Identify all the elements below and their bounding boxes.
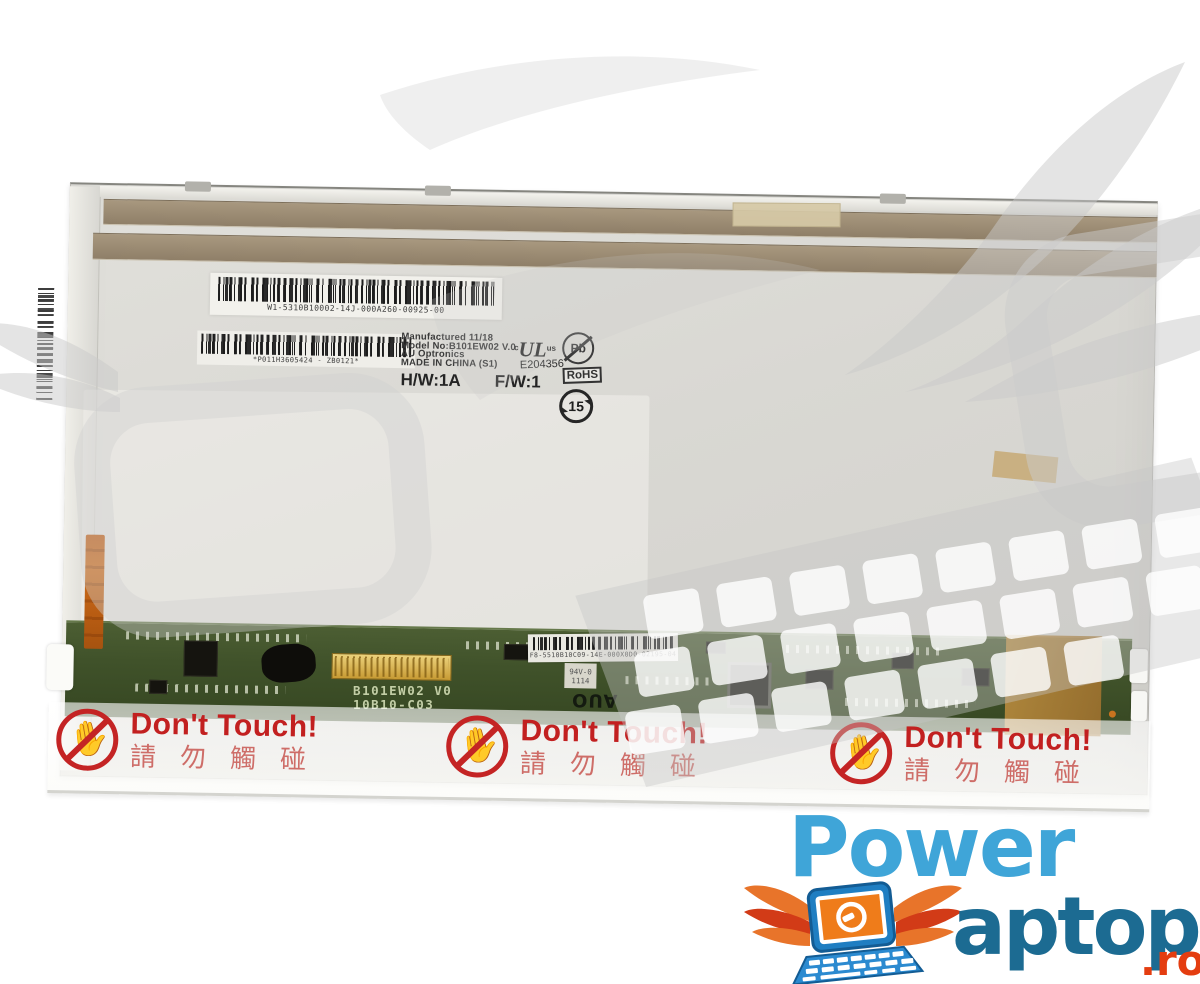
left-edge-tab: [46, 644, 74, 690]
smd-chip: [961, 668, 989, 686]
smd-pads: [845, 698, 975, 708]
no-touch-icon: ✋: [56, 708, 119, 771]
silkscreen-model: B101EW02 V0: [353, 684, 452, 698]
origin-line: MADE IN CHINA (S1): [401, 359, 516, 370]
test-point-dot: [1109, 711, 1116, 718]
dont-touch-title: Don't Touch!: [520, 716, 721, 749]
ul-file-number: E204356: [520, 358, 564, 372]
pcb-barcode-label: F8-5510B10C09-14E-000X0D0-02195-04: [528, 633, 678, 662]
dont-touch-subtitle: 請勿觸碰: [130, 742, 330, 773]
serial-barcode-sticker: W1-5310B10002-14J-000A260-00925-00: [210, 273, 503, 320]
orange-flex-cable: [84, 535, 105, 649]
winged-laptop-icon: [740, 874, 966, 984]
spec-label-text: Manufactured 11/18 Model No:B101EW02 V.0…: [401, 333, 516, 369]
barcode-icon: [201, 334, 411, 358]
no-touch-icon: ✋: [446, 715, 509, 778]
rohs-mark: RoHS: [562, 367, 602, 384]
ic-chip: [183, 640, 218, 677]
barcode-icon: [533, 636, 673, 650]
masking-tape-piece: [732, 202, 840, 227]
driver-ic-qfp: [727, 662, 772, 709]
hw-fw-line: H/W:1AF/W:1: [400, 370, 540, 392]
dont-touch-label: ✋ Don't Touch! 請勿觸碰: [446, 715, 777, 783]
top-edge-clip: [880, 193, 906, 203]
powerlaptop-logo: Power: [740, 808, 1200, 984]
dont-touch-subtitle: 請勿觸碰: [520, 749, 720, 780]
right-edge-tab: [1129, 649, 1148, 683]
dont-touch-label: ✋ Don't Touch! 請勿觸碰: [830, 722, 1161, 790]
glue-blob-component: [260, 642, 317, 684]
no-touch-icon: ✋: [830, 722, 893, 785]
right-edge-tab: [1131, 691, 1148, 721]
product-photo: W1-5310B10002-14J-000A260-00925-00 *P011…: [0, 0, 1200, 984]
smd-chip: [504, 644, 530, 660]
ic-marking: 94V-0 1114: [564, 663, 596, 689]
smd-pads: [786, 645, 946, 656]
top-edge-clip: [185, 181, 211, 191]
dont-touch-label: ✋ Don't Touch! 請勿觸碰: [56, 708, 387, 776]
smd-chip: [706, 641, 726, 653]
auo-logo: AUO: [571, 689, 618, 711]
lot-barcode-sticker: *P011H3605424 - ZB0121*: [197, 331, 416, 369]
hw-value: H/W:1A: [400, 370, 460, 390]
barcode-icon: [218, 277, 494, 306]
dont-touch-title: Don't Touch!: [904, 723, 1105, 756]
smd-chip: [805, 669, 833, 689]
smd-pads: [625, 676, 715, 686]
left-wing-icon: [744, 885, 812, 946]
smd-chip: [149, 680, 167, 694]
pcb-barcode-text: F8-5510B10C09-14E-000X0D0-02195-04: [528, 650, 678, 659]
brand-tld: .ro: [1140, 936, 1200, 984]
top-edge-clip: [425, 185, 451, 195]
panel-sheet-highlight: [81, 390, 650, 638]
smd-chip: [892, 653, 914, 669]
lcd-panel-back: W1-5310B10002-14J-000A260-00925-00 *P011…: [60, 182, 1158, 795]
fw-value: F/W:1: [495, 372, 541, 392]
dont-touch-title: Don't Touch!: [130, 709, 331, 742]
dont-touch-subtitle: 請勿觸碰: [904, 756, 1104, 787]
protective-warning-film: ✋ Don't Touch! 請勿觸碰 ✋ Don't Touch! 請勿觸碰: [47, 702, 1150, 812]
lvds-connector: [331, 653, 451, 681]
side-barcode-sticker: [36, 288, 54, 400]
